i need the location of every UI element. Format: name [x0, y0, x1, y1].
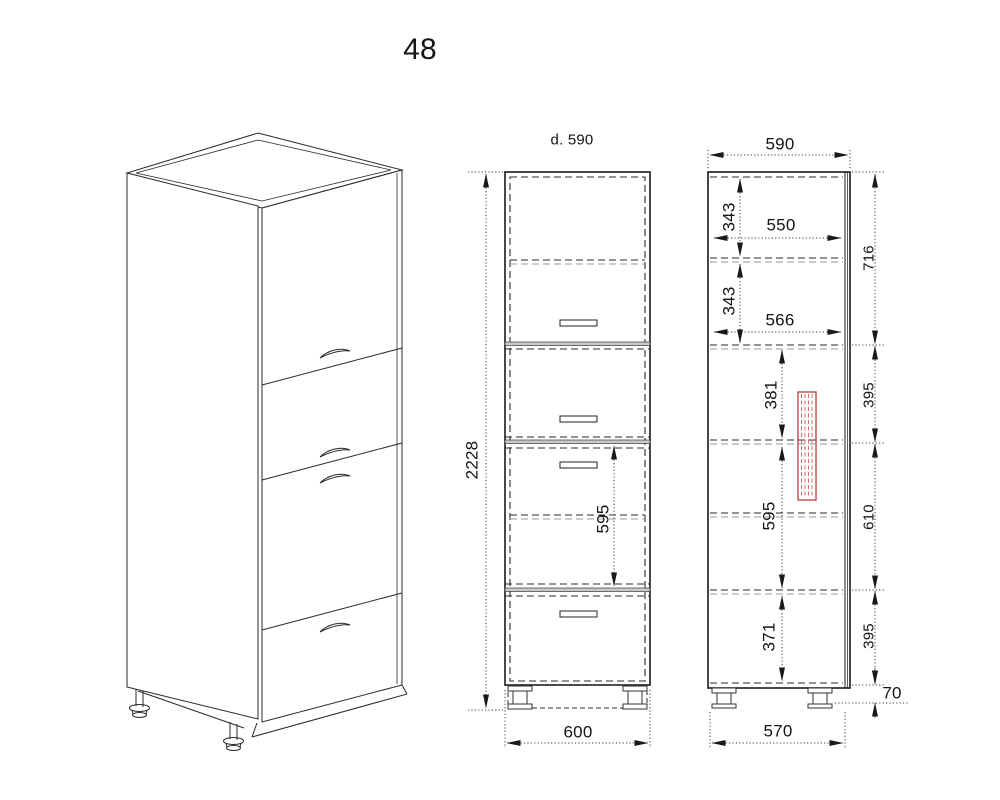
dim-chain-top: 716 [862, 245, 877, 271]
dim-side-divider-mid-gap: 381 [763, 381, 780, 410]
dim-side-depth: 590 [766, 136, 795, 153]
side-feet [712, 688, 832, 708]
iso-view [127, 133, 407, 751]
dim-chain-lower: 395 [862, 623, 877, 649]
dim-side-base-depth: 570 [764, 723, 793, 740]
dim-front-total-height: 2228 [464, 441, 481, 480]
drawing-number: 48 [403, 35, 437, 65]
dim-side-mid-section: 595 [761, 502, 778, 531]
dim-chain-mid: 610 [862, 504, 877, 530]
dim-chain-upper-mid: 395 [862, 382, 877, 408]
iso-front-face [262, 170, 402, 722]
dim-front-drawer-section: 595 [595, 505, 612, 534]
dim-plinth-height: 70 [882, 685, 901, 702]
dim-front-width: 600 [564, 724, 593, 741]
dim-side-shelf-divider-gap: 343 [721, 287, 738, 316]
side-view [708, 172, 850, 708]
front-view [505, 172, 650, 709]
iso-side-panel [127, 173, 258, 719]
technical-drawing-page: 48 d. 590 2228 595 600 590 343 550 343 5… [0, 0, 1000, 800]
dim-side-top-shelf-gap: 343 [721, 203, 738, 232]
front-depth-note: d. 590 [551, 133, 594, 148]
front-feet [508, 686, 647, 709]
dim-side-bottom-section: 371 [761, 623, 778, 652]
dim-side-lower-shelf-depth: 566 [766, 312, 795, 329]
dim-side-upper-shelf-depth: 550 [767, 217, 796, 234]
dimension-drawing-canvas [0, 0, 1000, 800]
